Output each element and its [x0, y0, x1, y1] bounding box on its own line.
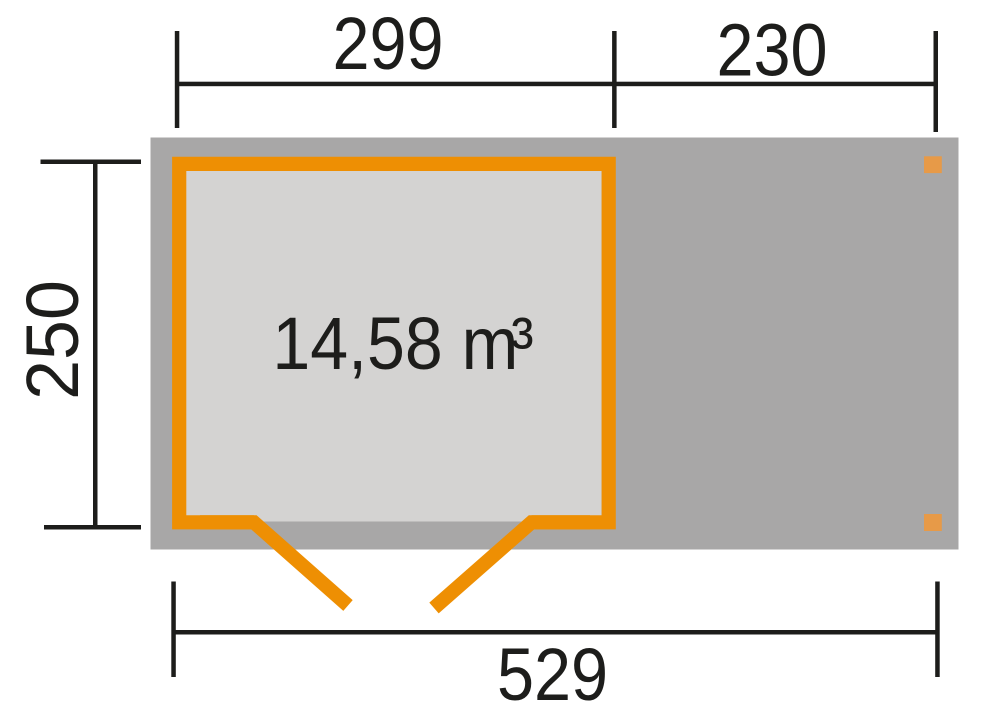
svg-text:250: 250 — [12, 280, 94, 400]
svg-text:230: 230 — [716, 8, 827, 91]
svg-text:299: 299 — [332, 2, 443, 85]
svg-text:529: 529 — [497, 633, 608, 715]
svg-text:14,58 m³: 14,58 m³ — [272, 303, 533, 385]
